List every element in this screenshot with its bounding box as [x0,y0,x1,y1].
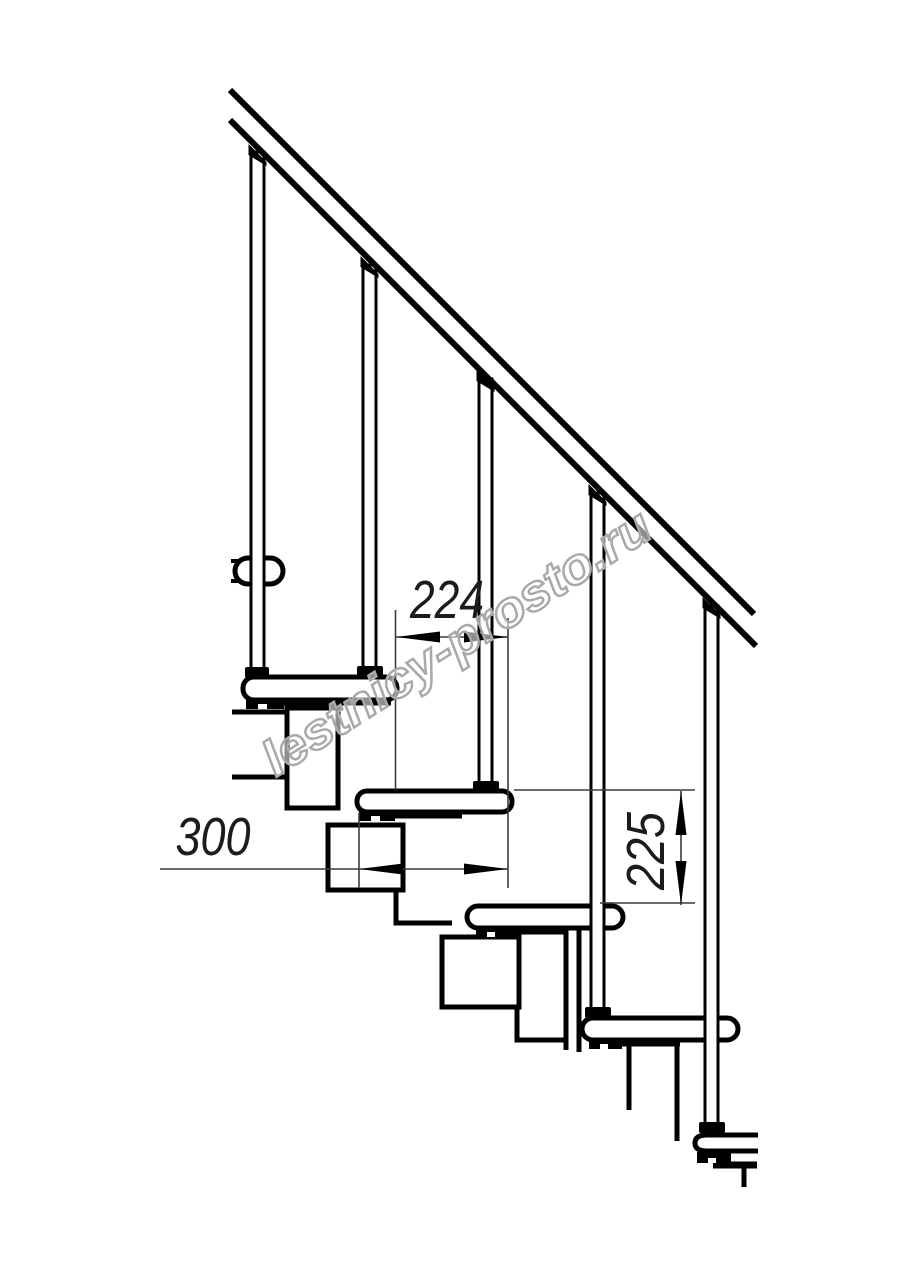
bracket-notch [487,932,495,937]
staircase-side-elevation: 224 300 225 lestnicy-prosto.ru [0,0,914,1280]
arrowhead-right [464,864,508,875]
baluster-2 [363,265,376,677]
baluster-foot-collar [245,667,269,678]
bracket-notch [600,1044,608,1049]
support-module [442,937,519,1007]
dimension-label-300: 300 [176,807,251,867]
baluster-1 [251,152,264,677]
baluster-foot-collar [473,781,499,792]
staircase-drawing-page: 224 300 225 lestnicy-prosto.ru [0,0,914,1280]
bracket-notch [258,704,267,709]
support-module [328,825,403,890]
tread-2 [357,791,512,812]
baluster-foot-collar [585,1007,611,1018]
baluster-foot-collar [699,1122,725,1133]
tread-5 [695,1135,758,1151]
module-connector [396,890,452,923]
baluster-5 [705,606,718,1133]
module-connector [517,1007,566,1040]
bracket-notch [371,816,380,821]
arrowhead-up [676,791,687,835]
arrowhead-down [676,861,687,905]
bracket-notch [708,1158,716,1163]
dimension-label-225: 225 [616,811,676,891]
